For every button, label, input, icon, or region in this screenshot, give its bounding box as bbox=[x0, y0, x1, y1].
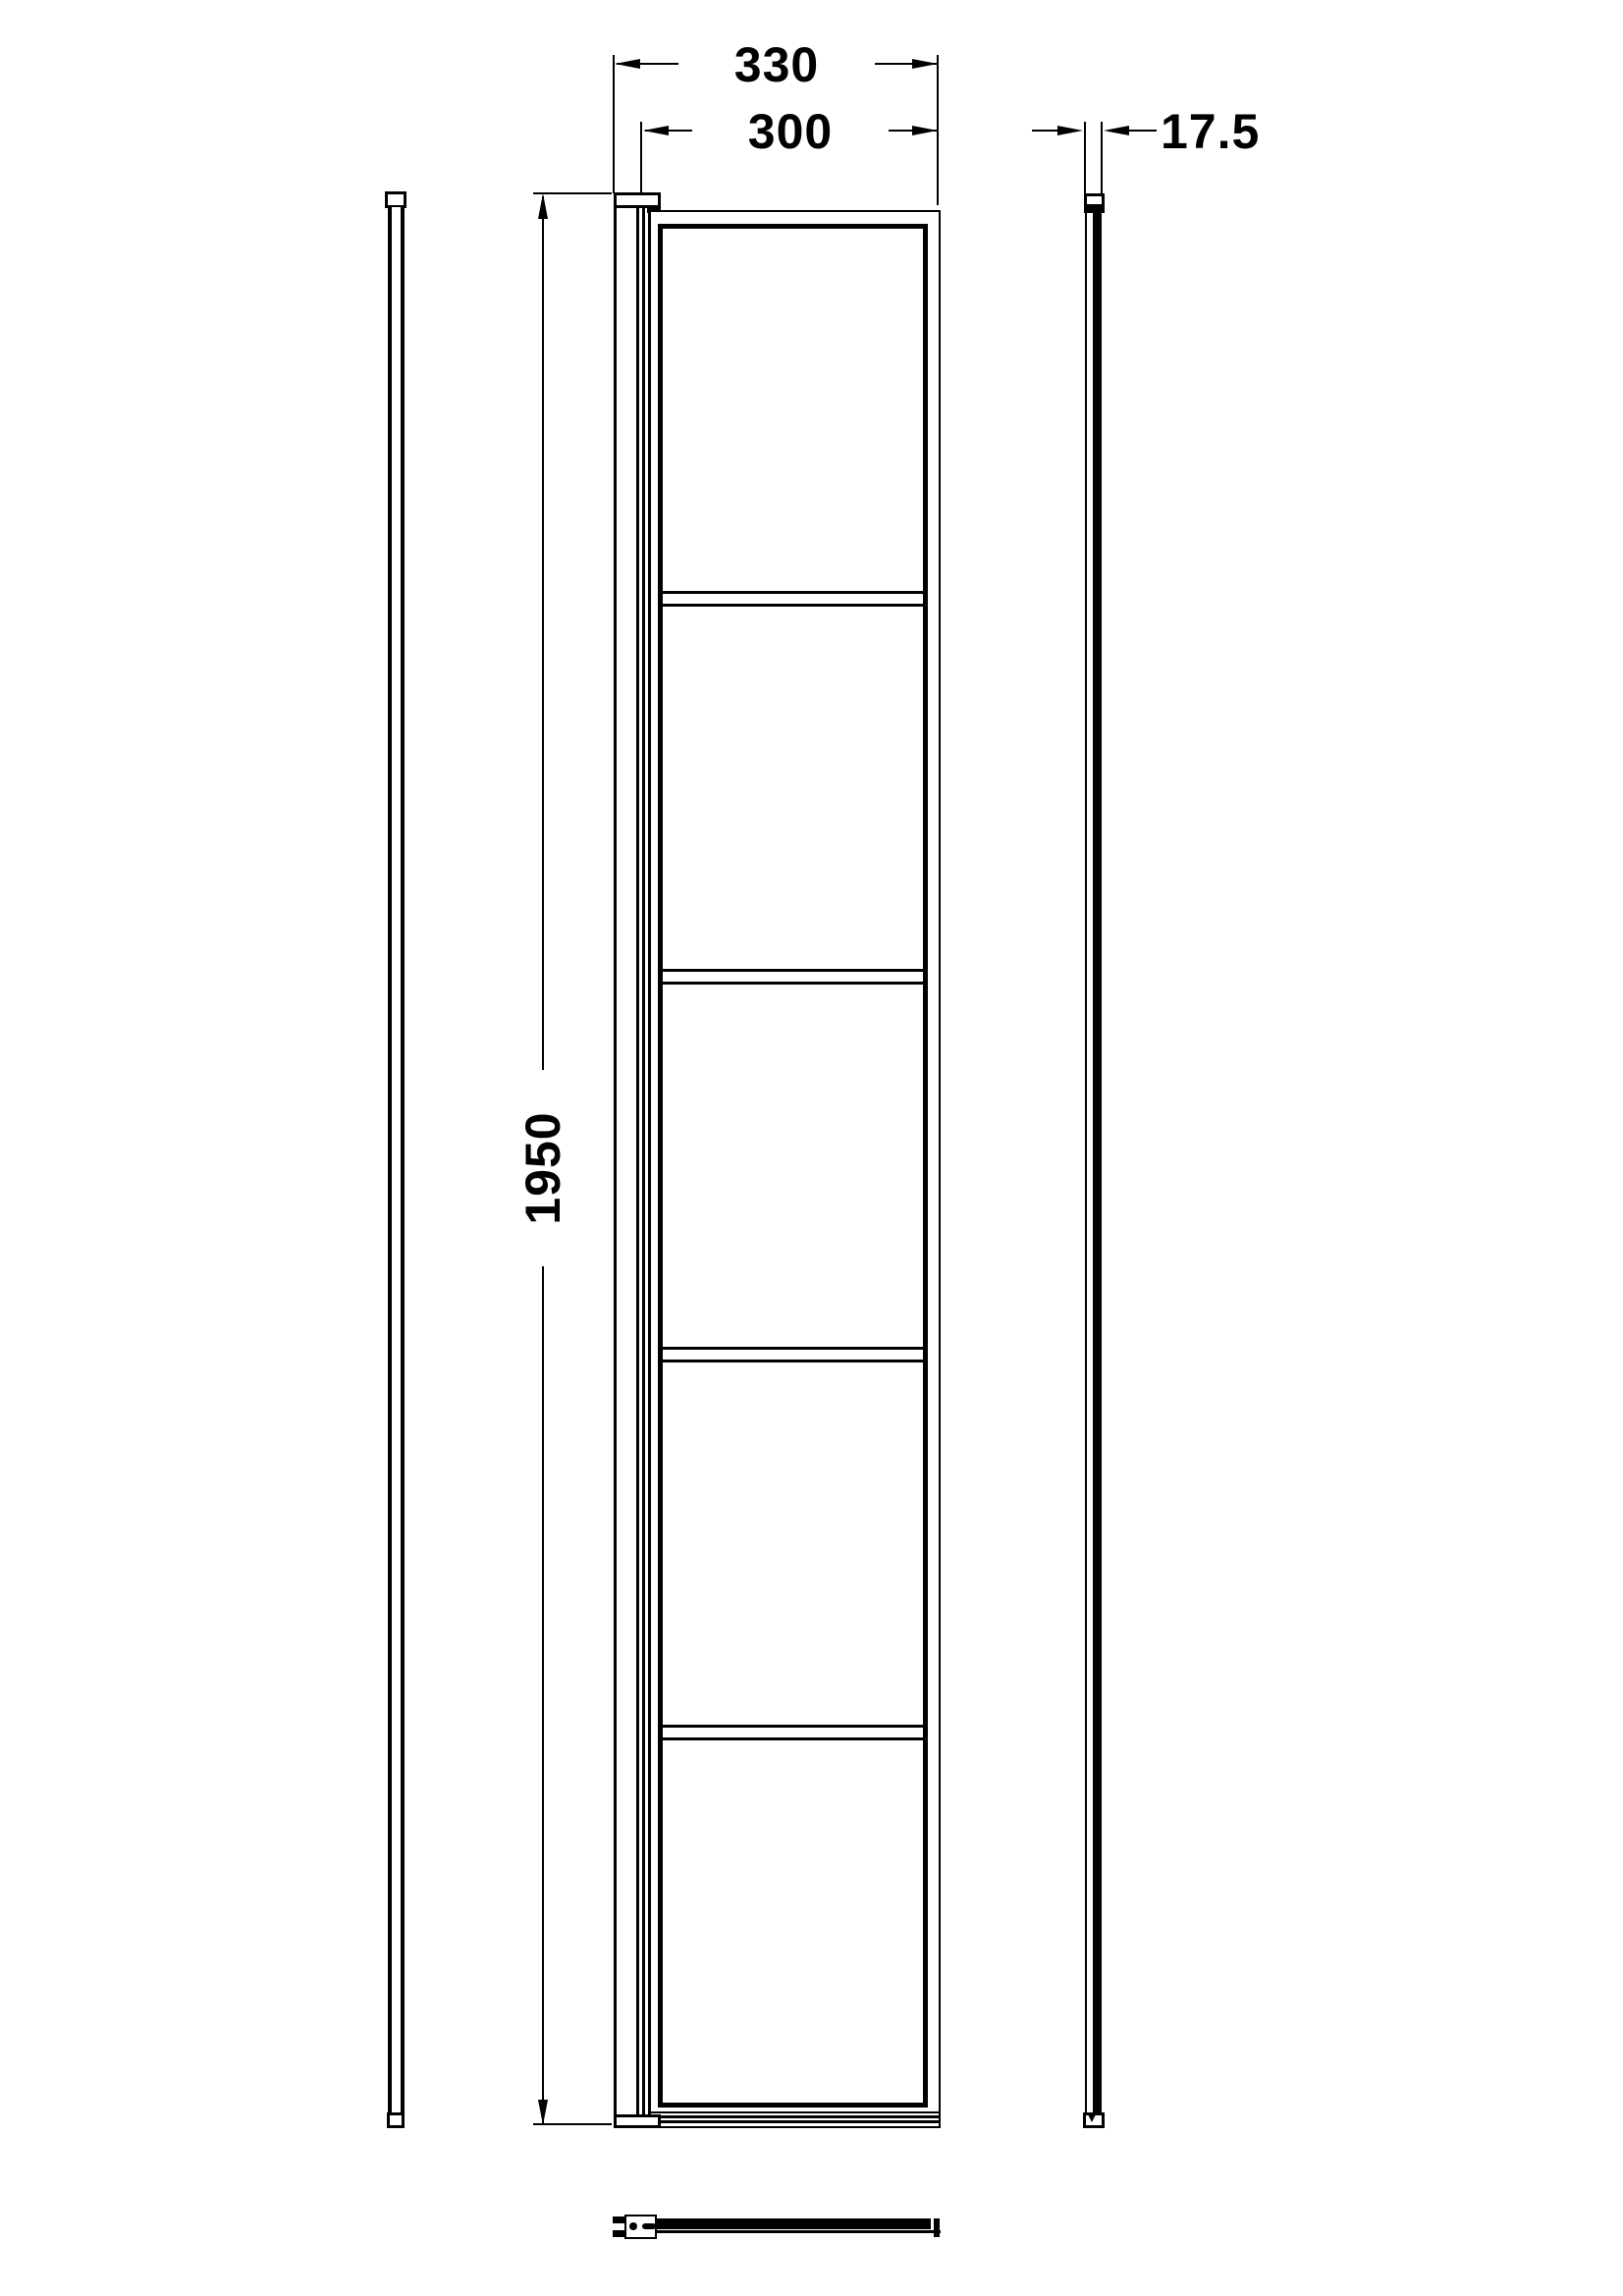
dim-height-arrow-top bbox=[538, 193, 548, 219]
mullion-bar bbox=[663, 1347, 923, 1362]
wall-profile-top-cap bbox=[614, 192, 661, 208]
wall-profile-bottom-cap bbox=[614, 2114, 661, 2128]
dim-overall-arrow-left bbox=[615, 59, 640, 69]
right-view-profile-line bbox=[1085, 213, 1087, 2113]
mullion-bar bbox=[663, 969, 923, 985]
bottom-rail-line-3 bbox=[651, 2120, 939, 2123]
left-view-body bbox=[388, 207, 405, 2114]
plan-glass-end-cap bbox=[934, 2218, 940, 2237]
dim-glass-arrow-left bbox=[643, 126, 669, 135]
dim-height-arrow-bottom bbox=[538, 2100, 548, 2125]
wall-profile-line-outer bbox=[614, 207, 617, 2114]
dim-height-line-lower bbox=[542, 1245, 544, 2125]
plan-screw-hole bbox=[629, 2222, 637, 2230]
mullion-bar bbox=[663, 1725, 923, 1740]
dim-overall-ext-left bbox=[613, 55, 615, 193]
plan-glass-bottom-line bbox=[656, 2230, 941, 2233]
dim-thickness-arrow-left bbox=[1057, 126, 1083, 135]
technical-drawing-canvas: 1950 330 300 bbox=[0, 0, 1623, 2296]
bottom-rail-line-2 bbox=[651, 2115, 939, 2118]
glass-panel bbox=[663, 1362, 923, 1725]
dim-thickness-leader-right bbox=[1127, 130, 1157, 132]
glass-panel bbox=[663, 1740, 923, 2103]
glass-panel bbox=[663, 229, 923, 591]
panel-grid bbox=[658, 224, 928, 2108]
dim-overall-arrow-right bbox=[912, 59, 938, 69]
right-view-neck-band bbox=[1084, 206, 1105, 213]
left-view-top-cap bbox=[385, 191, 406, 208]
dim-glass-ext-left bbox=[640, 122, 642, 202]
right-view-glass-edge bbox=[1093, 213, 1102, 2113]
dim-height-line-upper bbox=[542, 196, 544, 1092]
dim-thickness-ext-left bbox=[1084, 122, 1086, 194]
glass-panel bbox=[663, 985, 923, 1347]
plan-adjustment-slot bbox=[642, 2223, 656, 2229]
right-view-top-cap bbox=[1084, 193, 1105, 207]
left-view-bottom-cap bbox=[387, 2112, 405, 2128]
dim-glass-arrow-right bbox=[912, 126, 938, 135]
bottom-rail-line-1 bbox=[651, 2111, 939, 2113]
dim-thickness-arrow-right bbox=[1104, 126, 1129, 135]
plan-glass-band bbox=[656, 2218, 931, 2229]
dim-glass-label: 300 bbox=[692, 102, 889, 161]
dim-thickness-ext-right bbox=[1101, 122, 1103, 194]
right-view-bottom-seal bbox=[1088, 2114, 1096, 2122]
dim-overall-label: 330 bbox=[678, 35, 875, 94]
wall-profile-line-2 bbox=[636, 207, 639, 2114]
dim-thickness-label: 17.5 bbox=[1161, 102, 1278, 161]
mullion-bar bbox=[663, 591, 923, 607]
glass-panel bbox=[663, 607, 923, 969]
dim-height-label: 1950 bbox=[514, 1070, 572, 1266]
wall-profile-line-3 bbox=[642, 207, 645, 2114]
